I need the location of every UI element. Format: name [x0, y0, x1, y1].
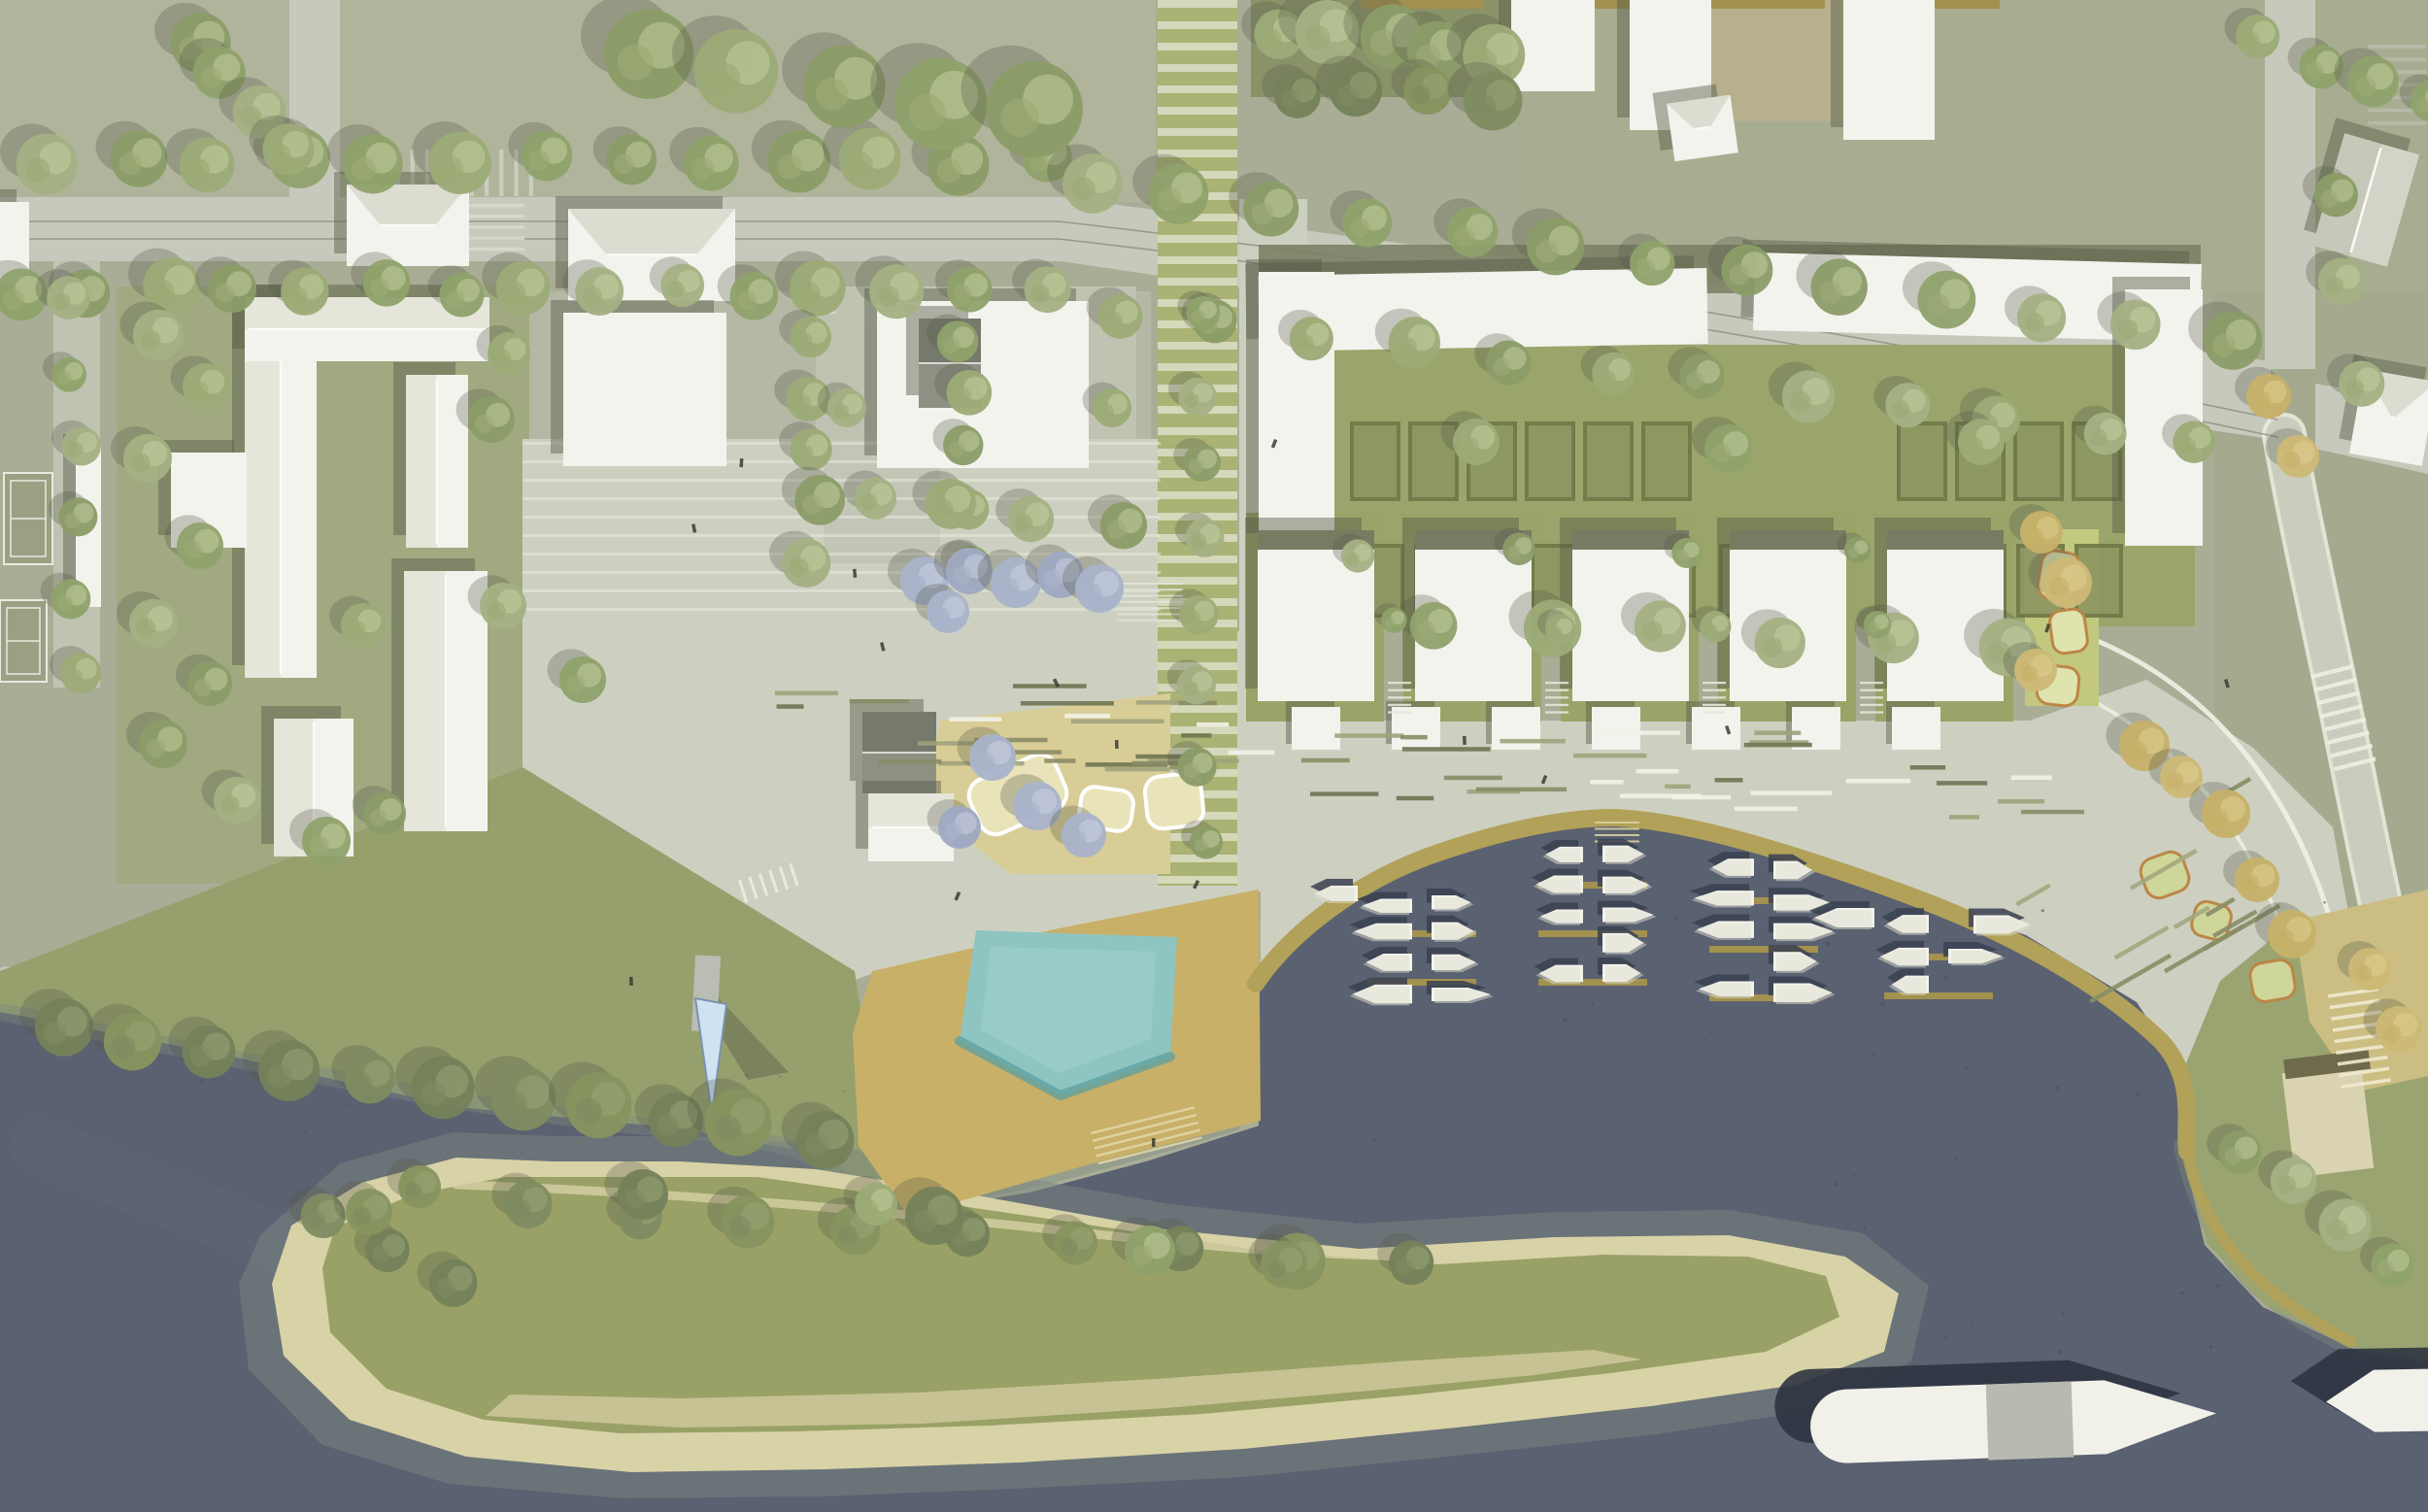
tower-dark-slope — [862, 712, 936, 753]
mark — [1703, 704, 1726, 706]
bench — [775, 690, 838, 695]
canopy-texture — [998, 577, 1019, 597]
canopy-texture — [1071, 177, 1096, 201]
canopy-texture — [2225, 1148, 2243, 1165]
bench — [1397, 796, 1433, 801]
canopy-texture — [1636, 258, 1654, 276]
building-body — [1592, 707, 1640, 750]
canopy-texture — [1083, 584, 1102, 603]
stripe — [1158, 278, 1237, 286]
bench — [1754, 730, 1801, 735]
canopy-texture — [976, 753, 995, 771]
canopy-texture — [1762, 637, 1782, 657]
canopy-texture — [3, 288, 24, 310]
canopy-texture — [353, 1207, 371, 1226]
speckle — [1327, 997, 1329, 999]
garden-hedge — [1527, 423, 1573, 499]
canopy-texture — [802, 494, 823, 515]
mark — [499, 150, 503, 196]
mark — [1595, 828, 1639, 830]
canopy-texture — [370, 278, 388, 296]
canopy-texture — [943, 337, 960, 353]
canopy-texture — [798, 282, 821, 304]
speckle — [1970, 1155, 1972, 1157]
canopy-texture — [2025, 313, 2044, 332]
canopy-texture — [1686, 371, 1703, 388]
canopy-texture — [2167, 772, 2184, 790]
stripe — [523, 608, 1161, 611]
speckle — [1591, 1003, 1594, 1006]
canopy-texture — [1397, 337, 1417, 357]
playground-shapes-east-part — [2048, 608, 2089, 655]
canopy-texture — [1507, 546, 1520, 558]
canopy-texture — [216, 284, 235, 303]
bench — [1334, 733, 1403, 738]
canopy-texture — [57, 371, 71, 385]
canopy-texture — [504, 282, 525, 303]
canopy-texture — [1642, 621, 1663, 641]
canopy-texture — [1068, 830, 1086, 848]
canopy-texture — [68, 442, 84, 457]
canopy-texture — [790, 557, 809, 577]
roof-west-slope — [406, 375, 437, 548]
canopy-texture — [1926, 293, 1949, 317]
person — [1152, 1138, 1156, 1147]
bench — [2021, 810, 2084, 815]
building-body — [1892, 707, 1940, 750]
bench — [1735, 807, 1798, 812]
person — [629, 977, 633, 986]
canopy-texture — [1281, 89, 1299, 108]
pavilion-7 — [1886, 701, 1940, 750]
person — [1115, 740, 1119, 749]
canopy-texture — [119, 152, 142, 175]
building-body — [1511, 0, 1595, 91]
bench — [1998, 799, 2044, 804]
canopy-texture — [1493, 358, 1510, 376]
canopy-texture — [2209, 809, 2229, 828]
stripe — [1158, 427, 1237, 435]
bench — [1402, 747, 1491, 752]
masterplan-canvas — [0, 0, 2428, 1512]
canopy-texture — [56, 594, 72, 610]
pavilion-5 — [1686, 701, 1740, 750]
canopy-texture — [2118, 319, 2139, 340]
ship-cabin — [1986, 1382, 2074, 1461]
canopy-texture — [494, 349, 512, 366]
bench — [1044, 758, 1075, 763]
speckle — [284, 1127, 286, 1129]
bench — [1310, 791, 1378, 796]
canopy-texture — [2027, 527, 2044, 545]
canopy-texture — [438, 156, 463, 182]
canopy-texture — [2321, 190, 2339, 208]
canopy-texture — [2306, 62, 2323, 80]
canopy-texture — [2355, 964, 2373, 982]
speckle — [2057, 1349, 2062, 1354]
mark — [1388, 711, 1411, 713]
canopy-texture — [437, 1278, 456, 1297]
center-hall — [551, 300, 726, 466]
bench — [777, 704, 804, 709]
stripe — [1158, 555, 1237, 563]
mark — [1117, 583, 1183, 585]
bench — [1910, 765, 1946, 770]
mark — [1388, 682, 1411, 684]
canopy-texture — [348, 621, 365, 638]
bench — [1181, 733, 1211, 738]
speckle — [2141, 1294, 2143, 1296]
mark — [1545, 711, 1568, 713]
canopy-texture — [838, 1225, 858, 1244]
speckle — [1972, 1324, 1973, 1326]
stripe — [1158, 85, 1237, 93]
roof-west-slope — [404, 571, 446, 831]
canopy-texture — [1350, 218, 1369, 237]
bench — [1301, 758, 1350, 763]
mark — [1595, 834, 1639, 836]
canopy-texture — [1304, 25, 1330, 50]
person — [739, 458, 743, 467]
canopy-texture — [1191, 533, 1206, 549]
canopy-texture — [1183, 762, 1198, 778]
canopy-texture — [2283, 452, 2301, 469]
mark — [1860, 689, 1883, 691]
canopy-texture — [184, 541, 202, 559]
canopy-texture — [372, 1245, 389, 1262]
stripe — [1158, 21, 1237, 29]
speckle — [1943, 975, 1947, 979]
bench — [1636, 769, 1679, 774]
speckle — [1674, 916, 1679, 921]
bench — [1744, 743, 1812, 748]
speckle — [1703, 1037, 1705, 1039]
canopy-texture — [1195, 839, 1208, 853]
bench — [2011, 775, 2052, 780]
bench — [1228, 751, 1274, 756]
pavilion-4 — [1586, 701, 1640, 750]
parapet-shadow-band — [1887, 530, 2004, 550]
canopy-texture — [113, 1035, 136, 1058]
canopy-texture — [2179, 437, 2196, 454]
bench — [1949, 815, 1979, 820]
canopy-texture — [848, 151, 873, 177]
canopy-texture — [189, 382, 208, 400]
west-inner-slab — [393, 362, 468, 548]
canopy-texture — [187, 158, 210, 181]
canopy-texture — [933, 498, 954, 519]
speckle — [1872, 1053, 1875, 1056]
speckle — [1939, 1207, 1941, 1210]
garden-hedge — [1643, 423, 1690, 499]
canopy-texture — [1184, 392, 1199, 408]
canopy-texture — [152, 280, 174, 302]
speckle — [1853, 1174, 1856, 1177]
canopy-texture — [1252, 203, 1274, 225]
stripe — [1158, 235, 1237, 243]
bench — [949, 717, 1001, 722]
bench — [1476, 788, 1567, 792]
canopy-texture — [1132, 1245, 1153, 1265]
canopy-texture — [147, 739, 166, 758]
speckle — [1965, 1065, 1968, 1068]
garden-hedge — [2015, 423, 2062, 499]
canopy-texture — [2345, 379, 2364, 397]
canopy-texture — [566, 675, 585, 693]
canopy-texture — [1189, 458, 1203, 473]
canopy-texture — [816, 78, 849, 111]
speckle — [1943, 1334, 1947, 1338]
stripe — [523, 479, 1161, 482]
mark — [1117, 588, 1183, 590]
pier-end-dock — [1703, 0, 1825, 9]
canopy-texture — [1021, 801, 1040, 821]
canopy-texture — [512, 1199, 531, 1219]
stripe — [1158, 641, 1237, 649]
canopy-texture — [1892, 400, 1909, 418]
mark — [1860, 711, 1883, 713]
canopy-texture — [707, 62, 741, 96]
canopy-texture — [667, 281, 685, 298]
canopy-texture — [2242, 875, 2259, 892]
canopy-texture — [937, 158, 961, 183]
canopy-texture — [1105, 312, 1123, 329]
canopy-texture — [270, 144, 290, 164]
canopy-texture — [1455, 226, 1475, 247]
canopy-texture — [1297, 334, 1314, 352]
canopy-texture — [501, 1092, 527, 1118]
bench — [878, 759, 941, 764]
canopy-texture — [914, 1209, 937, 1232]
speckle — [1140, 1188, 1142, 1190]
speckle — [345, 1104, 348, 1107]
canopy-texture — [1337, 84, 1359, 106]
canopy-texture — [908, 94, 945, 131]
canopy-texture — [1411, 85, 1431, 105]
canopy-texture — [220, 795, 239, 814]
canopy-texture — [657, 1114, 678, 1135]
canopy-texture — [1676, 550, 1688, 561]
canopy-texture — [2276, 929, 2295, 949]
speckle — [844, 1091, 846, 1092]
canopy-texture — [25, 157, 50, 182]
mark — [1388, 689, 1411, 691]
mark — [1545, 704, 1568, 706]
mark — [1860, 704, 1883, 706]
canopy-texture — [446, 290, 463, 308]
stripe — [1158, 43, 1237, 50]
canopy-texture — [268, 1064, 292, 1089]
canopy-texture — [1848, 547, 1859, 557]
canopy-texture — [1098, 404, 1114, 420]
canopy-texture — [1192, 309, 1205, 322]
canopy-texture — [2021, 665, 2039, 683]
canopy-texture — [2277, 1176, 2296, 1194]
bench — [1715, 778, 1743, 783]
bench — [1594, 730, 1680, 735]
canopy-texture — [1396, 1258, 1413, 1275]
canopy-texture — [949, 441, 965, 457]
canopy-texture — [1185, 611, 1200, 626]
playground-shapes-east-part — [2248, 958, 2297, 1003]
bench — [1500, 739, 1566, 744]
speckle — [2180, 1292, 2184, 1295]
speckle — [194, 1483, 196, 1485]
canopy-texture — [201, 67, 222, 88]
north-slab-3 — [1831, 0, 1935, 140]
canopy-texture — [1031, 285, 1050, 303]
canopy-texture — [1044, 570, 1062, 588]
canopy-texture — [691, 157, 714, 180]
canopy-texture — [44, 1021, 67, 1044]
speckle — [1834, 1182, 1838, 1186]
mark — [1117, 620, 1183, 622]
speckle — [2194, 1216, 2196, 1218]
canopy-texture — [2382, 1025, 2401, 1043]
speckle — [1954, 1157, 1957, 1159]
canopy-texture — [1385, 618, 1396, 628]
canopy-texture — [1460, 437, 1478, 455]
mark — [1388, 704, 1411, 706]
speckle — [200, 1079, 204, 1083]
speckle — [304, 1131, 307, 1134]
canopy-texture — [805, 1133, 828, 1157]
garden-hedge — [1585, 423, 1632, 499]
speckle — [2041, 909, 2044, 912]
pavilion-2 — [1386, 701, 1440, 750]
bench — [1013, 684, 1087, 689]
building-body — [1843, 0, 1935, 140]
speckle — [323, 1164, 325, 1166]
mark — [1860, 682, 1883, 684]
speckle — [2216, 1284, 2220, 1288]
canopy-texture — [576, 1098, 602, 1125]
canopy-texture — [353, 1073, 373, 1093]
building-body — [563, 313, 726, 466]
site-plan — [0, 0, 2428, 1512]
block-a-west — [1246, 259, 1334, 546]
bench — [1751, 790, 1832, 795]
person — [1463, 736, 1467, 745]
canopy-texture — [422, 1081, 447, 1106]
speckle — [2209, 1345, 2213, 1349]
canopy-texture — [2212, 334, 2236, 357]
mark — [2368, 45, 2426, 49]
canopy-texture — [861, 1199, 879, 1217]
speckle — [2085, 1251, 2087, 1253]
speckle — [1563, 1018, 1567, 1022]
canopy-texture — [1819, 281, 1841, 303]
canopy-texture — [1704, 623, 1717, 636]
canopy-texture — [2325, 277, 2344, 295]
canopy-texture — [64, 513, 80, 528]
canopy-texture — [1790, 391, 1811, 413]
canopy-texture — [933, 607, 951, 624]
canopy-texture — [1417, 621, 1435, 639]
stripe — [1158, 0, 1237, 8]
canopy-texture — [2355, 76, 2376, 96]
speckle — [1839, 1147, 1841, 1149]
canopy-texture — [1061, 1238, 1078, 1256]
speckle — [1880, 1002, 1884, 1006]
canopy-texture — [53, 293, 71, 311]
canopy-texture — [715, 1115, 742, 1142]
canopy-texture — [66, 668, 83, 685]
mark — [1545, 689, 1568, 691]
mark — [2368, 121, 2426, 125]
mark — [1388, 696, 1411, 698]
bench — [1937, 781, 1987, 786]
canopy-texture — [2090, 429, 2108, 447]
building-body — [1730, 530, 1846, 701]
canopy-texture — [1868, 622, 1878, 632]
canopy-texture — [2253, 391, 2271, 409]
canopy-texture — [792, 394, 810, 412]
canopy-texture — [310, 836, 329, 856]
speckle — [2055, 1086, 2059, 1090]
bench — [1671, 795, 1731, 800]
bench — [1846, 779, 1910, 784]
speckle — [2323, 901, 2326, 904]
speckle — [1367, 1062, 1369, 1064]
canopy-texture — [1712, 444, 1732, 463]
rowhouse-4 — [1717, 518, 1846, 701]
mark — [1860, 696, 1883, 698]
parapet-shadow-band — [1730, 530, 1846, 550]
bench — [1064, 714, 1110, 719]
garden-hedge — [1899, 423, 1945, 499]
mark — [1595, 822, 1639, 823]
mark — [1545, 696, 1568, 698]
bench — [1400, 735, 1428, 740]
speckle — [779, 1076, 781, 1078]
canopy-texture — [405, 1182, 422, 1199]
canopy-texture — [2377, 1260, 2395, 1278]
canopy-texture — [1183, 681, 1198, 696]
stripe — [1158, 128, 1237, 136]
canopy-texture — [141, 329, 161, 350]
canopy-texture — [945, 823, 962, 840]
stripe — [1158, 491, 1237, 499]
canopy-texture — [137, 619, 156, 638]
canopy-texture — [475, 415, 493, 433]
mark — [1703, 689, 1726, 691]
canopy-texture — [1550, 626, 1562, 638]
canopy-texture — [1000, 98, 1039, 137]
canopy-texture — [796, 332, 813, 349]
canopy-texture — [1107, 521, 1126, 539]
canopy-texture — [2127, 740, 2147, 760]
canopy-texture — [529, 151, 550, 171]
stripe — [1158, 107, 1237, 115]
canopy-texture — [618, 45, 654, 81]
canopy-texture — [1262, 29, 1281, 49]
canopy-texture — [1267, 1260, 1286, 1278]
speckle — [1666, 983, 1668, 985]
mark — [1703, 696, 1726, 698]
bench — [1197, 722, 1229, 727]
canopy-texture — [1158, 187, 1182, 212]
canopy-texture — [1729, 264, 1749, 285]
canopy-texture — [777, 154, 802, 180]
canopy-texture — [796, 445, 813, 461]
canopy-texture — [954, 285, 972, 303]
speckle — [1826, 941, 1830, 945]
bench — [1071, 720, 1164, 724]
canopy-texture — [131, 454, 151, 473]
bench — [850, 699, 909, 704]
canopy-texture — [352, 157, 376, 182]
